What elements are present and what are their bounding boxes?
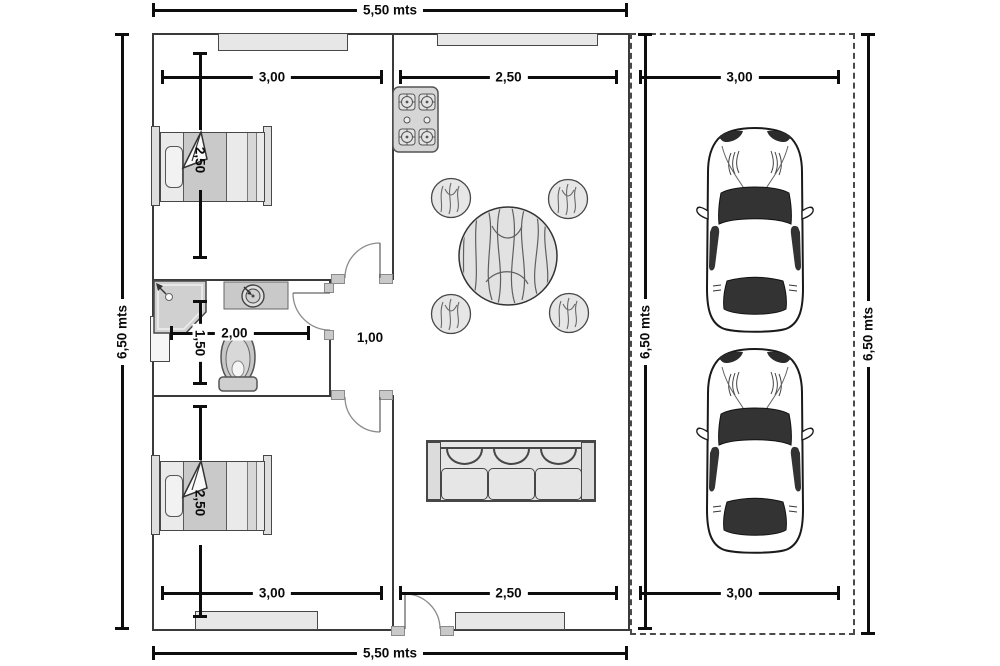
bed1-headboard (151, 126, 160, 206)
dimension-overall-left: 6,50 mts (115, 33, 129, 630)
door-jamb (324, 283, 334, 293)
window-kitchen (437, 33, 598, 46)
door-jamb (440, 626, 454, 636)
dimension-overall-bottom: 5,50 mts (152, 646, 628, 660)
dimension-kitchen-width: 2,50 (399, 70, 618, 84)
window-bedroom2 (195, 611, 318, 630)
bed2-blanket-stripe (247, 462, 257, 530)
wall-bathroom-bottom (152, 395, 332, 397)
dimension-label: 5,50 mts (357, 646, 423, 661)
sofa-seat-cushion (535, 468, 582, 500)
dimension-label: 6,50 mts (638, 298, 653, 364)
wall-bathroom-right-lower (329, 336, 331, 397)
wall-bedroom1-kitchen (392, 33, 394, 280)
dimension-label: 2,50 (489, 70, 527, 85)
dimension-label: 2,50 (489, 586, 527, 601)
dimension-garage-height: 6,50 mts (638, 33, 652, 630)
dimension-bedroom1-depth: 2,50 (193, 52, 207, 259)
dimension-garage-width-bottom: 3,00 (639, 586, 840, 600)
door-jamb (379, 390, 393, 400)
window-living (455, 612, 565, 630)
dimension-label: 6,50 mts (115, 298, 130, 364)
sofa-arm-left (427, 442, 441, 500)
dimension-label: 1,50 (193, 323, 208, 361)
bed1-pillow (165, 146, 183, 188)
floor-plan: 5,50 mts 5,50 mts 6,50 mts 6,50 mts 6,50… (0, 0, 1000, 666)
sofa-seat-cushion (488, 468, 535, 500)
garage-outline (630, 33, 855, 635)
bed2-pillow (165, 475, 183, 517)
sofa-seat-cushion (441, 468, 488, 500)
door-jamb (379, 274, 393, 284)
door-jamb (391, 626, 405, 636)
dimension-label: 2,00 (215, 326, 253, 341)
dimension-label: 6,50 mts (861, 301, 876, 367)
bed1-blanket-stripe (247, 133, 257, 201)
door-jamb (331, 390, 345, 400)
hallway-width-label: 1,00 (348, 330, 392, 345)
dimension-label: 2,50 (193, 488, 208, 518)
wall-bedroom2-living (392, 395, 394, 631)
dimension-bathroom-depth: 1,50 (193, 300, 207, 385)
sofa-arm-right (581, 442, 595, 500)
dimension-label: 2,50 (193, 144, 208, 174)
dimension-label: 5,50 mts (357, 3, 423, 18)
bed2-headboard (151, 455, 160, 535)
door-jamb (324, 330, 334, 340)
dimension-label: 3,00 (720, 70, 758, 85)
wall-bathroom-top (152, 279, 332, 281)
dimension-overall-right: 6,50 mts (861, 33, 875, 635)
dimension-bedroom2-depth: 2,50 (193, 405, 207, 618)
window-bedroom1 (218, 33, 348, 51)
dimension-bathroom-width: 2,00 (170, 326, 310, 340)
dimension-label: 3,00 (253, 586, 291, 601)
dimension-garage-width-top: 3,00 (639, 70, 840, 84)
window-bathroom (150, 316, 170, 362)
entrance-opening (404, 628, 441, 634)
dimension-living-width: 2,50 (399, 586, 618, 600)
dimension-overall-top: 5,50 mts (152, 3, 628, 17)
dimension-label: 3,00 (720, 586, 758, 601)
dimension-label: 3,00 (253, 70, 291, 85)
